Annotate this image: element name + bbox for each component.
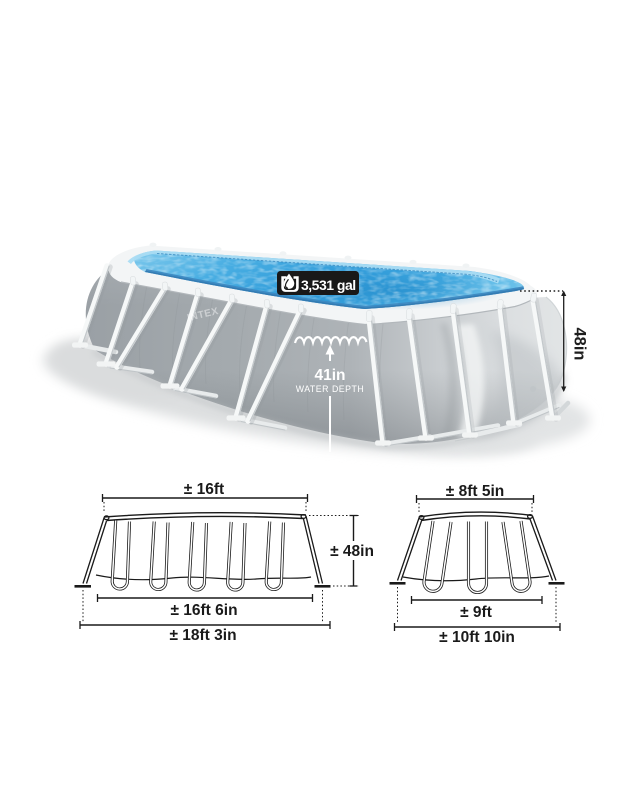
svg-text:± 10ft 10in: ± 10ft 10in bbox=[439, 629, 515, 646]
svg-text:WATER DEPTH: WATER DEPTH bbox=[296, 384, 365, 394]
svg-text:± 9ft: ± 9ft bbox=[460, 604, 492, 621]
svg-text:± 16ft: ± 16ft bbox=[184, 481, 224, 498]
svg-text:± 48in: ± 48in bbox=[330, 543, 374, 560]
svg-text:41in: 41in bbox=[314, 367, 345, 384]
svg-text:3,531 gal: 3,531 gal bbox=[301, 277, 356, 293]
svg-text:± 8ft 5in: ± 8ft 5in bbox=[446, 483, 504, 500]
svg-text:± 18ft 3in: ± 18ft 3in bbox=[169, 627, 236, 644]
svg-text:± 16ft 6in: ± 16ft 6in bbox=[170, 602, 237, 619]
svg-text:48in: 48in bbox=[571, 327, 589, 360]
